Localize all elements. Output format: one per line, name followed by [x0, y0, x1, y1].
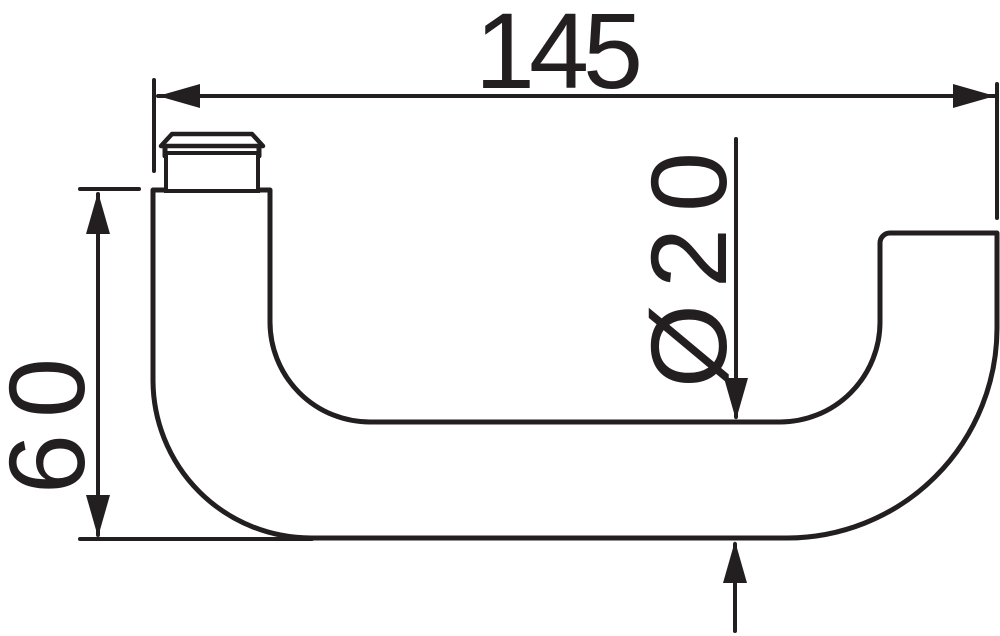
height-dim-label: 60 — [0, 342, 107, 494]
diameter-arrow-up — [723, 541, 747, 583]
handle-outline — [153, 190, 997, 538]
height-arrow-bottom — [86, 495, 110, 537]
neck-collar — [166, 153, 258, 191]
width-arrow-left — [158, 84, 200, 108]
spindle-cap — [161, 134, 263, 146]
height-arrow-top — [86, 192, 110, 234]
width-arrow-right — [953, 84, 995, 108]
technical-drawing-page: 145 60 Ø20 — [0, 0, 1000, 636]
diameter-dim-label: Ø20 — [628, 136, 749, 388]
drawing-canvas: 145 60 Ø20 — [0, 0, 1000, 636]
width-dim-label: 145 — [475, 0, 639, 111]
stroke-layer — [80, 80, 997, 631]
